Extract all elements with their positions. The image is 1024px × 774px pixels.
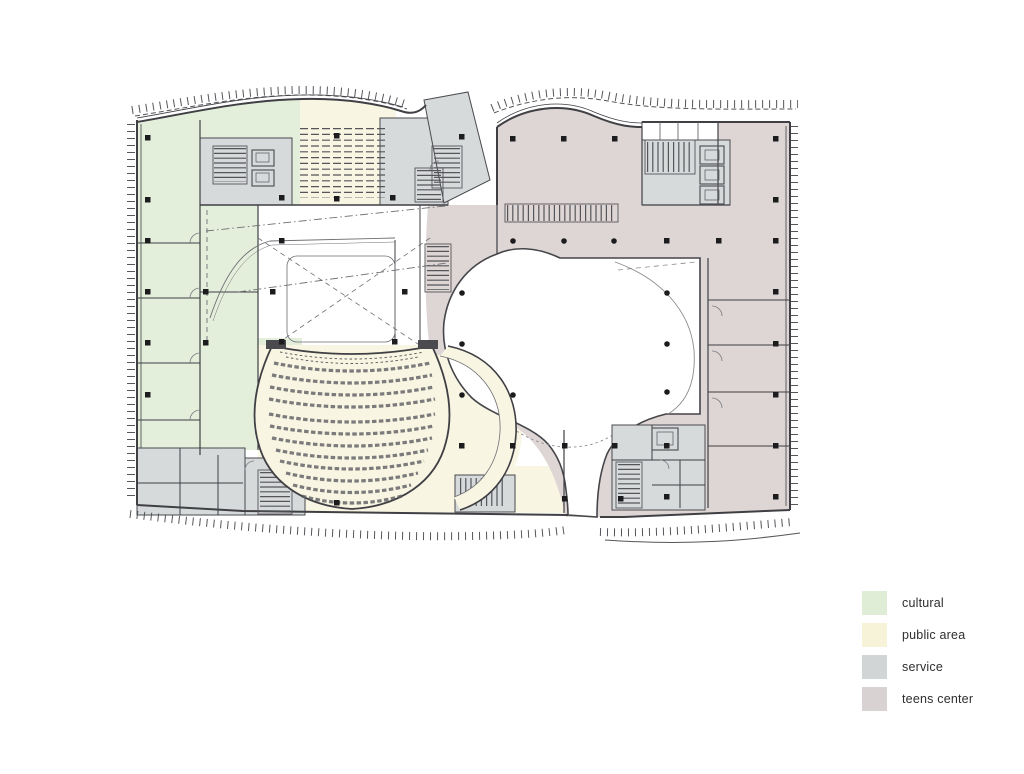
legend-item-public-area: public area	[862, 623, 973, 647]
legend: cultural public area service teens cente…	[862, 591, 973, 711]
legend-item-teens-center: teens center	[862, 687, 973, 711]
service-swatch	[862, 655, 887, 679]
cultural-swatch	[862, 591, 887, 615]
legend-label-public-area: public area	[902, 628, 965, 642]
legend-label-cultural: cultural	[902, 596, 944, 610]
floorplan-page: cultural public area service teens cente…	[0, 0, 1024, 774]
legend-item-cultural: cultural	[862, 591, 973, 615]
legend-label-service: service	[902, 660, 943, 674]
public-area-swatch	[862, 623, 887, 647]
legend-item-service: service	[862, 655, 973, 679]
teens-center-swatch	[862, 687, 887, 711]
legend-label-teens-center: teens center	[902, 692, 973, 706]
proscenium-stub	[418, 340, 438, 349]
